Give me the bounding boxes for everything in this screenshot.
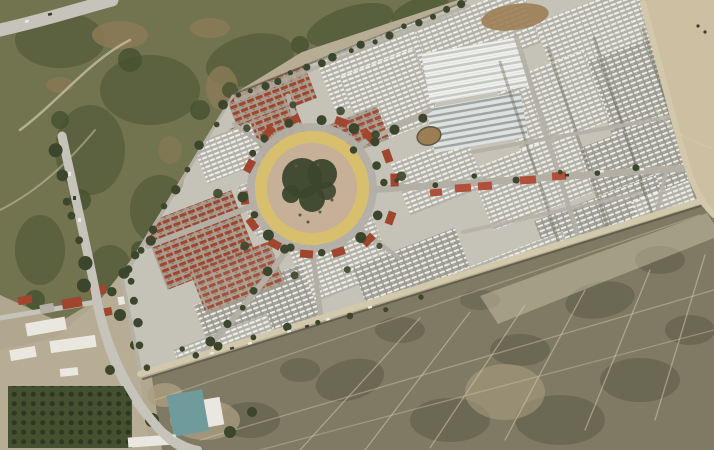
cypress-ring-outer [291, 271, 299, 279]
tree-row-avenue [223, 320, 231, 328]
orchard-trees [8, 386, 132, 448]
car [600, 170, 604, 173]
tree-row-north-wall [288, 70, 293, 75]
plaza-dot [299, 214, 302, 217]
tree [247, 407, 257, 417]
car [73, 196, 76, 200]
tree-row-west [171, 185, 180, 194]
tree-row-avenue [250, 287, 258, 295]
tree-row-avenue [432, 182, 438, 188]
cypress-ring [355, 232, 366, 243]
tree-row-avenue [513, 177, 520, 184]
car [703, 30, 706, 33]
cypress-ring [318, 249, 325, 256]
tree-row-avenue [394, 178, 399, 183]
tree-row-roadside [77, 279, 91, 293]
tree-row-north-wall [373, 39, 378, 44]
tree-row-north-wall [248, 88, 253, 93]
tree-row-avenue [263, 267, 273, 277]
tree-row-avenue [370, 137, 379, 146]
bare-patch [190, 18, 230, 38]
tree-row-west [185, 167, 191, 173]
tree-row-avenue [240, 305, 246, 311]
tree-row-west [161, 203, 167, 209]
tree [224, 426, 236, 438]
tree-row-south [418, 294, 423, 299]
cypress-ring [317, 115, 327, 125]
plaza-trees [318, 182, 336, 200]
tree-row-avenue [280, 244, 289, 253]
tree-row-west [144, 364, 151, 371]
tree-row-roadside [75, 236, 83, 244]
cypress-ring [349, 123, 360, 134]
tree-row-avenue [389, 125, 399, 135]
tree-row-south [383, 307, 388, 312]
tree-row-avenue [471, 173, 477, 179]
tree-row-south [214, 342, 223, 351]
plaza-dot [307, 221, 310, 224]
tree [190, 100, 210, 120]
tree-row-north-wall [443, 6, 450, 13]
cypress-ring [260, 135, 268, 143]
red-roof-structure [478, 182, 493, 191]
tree-row-north-wall [401, 23, 407, 29]
plaza-dot [319, 211, 322, 214]
car [640, 168, 644, 171]
cypress-ring [372, 161, 381, 170]
tree [118, 48, 142, 72]
tree-row-hill-edge [131, 251, 139, 259]
scrub-patch [490, 334, 550, 366]
cypress-ring-outer [213, 189, 223, 199]
tree-row-west [133, 318, 142, 327]
tree-row-roadside [49, 143, 63, 157]
tree-row-north-wall [318, 59, 326, 67]
tree-row-roadside [63, 198, 71, 206]
tree [114, 309, 126, 321]
tree-row-north-wall [349, 48, 354, 53]
tree-row-north-wall [385, 31, 393, 39]
car [696, 24, 699, 27]
tree-row-hill-edge [119, 268, 130, 279]
tree-row-north-wall [357, 41, 365, 49]
cypress-ring-outer [336, 107, 345, 116]
red-mausoleum [300, 249, 314, 258]
tree-row-avenue [350, 146, 357, 153]
cypress-ring-outer [376, 243, 382, 249]
tree-row-avenue [418, 114, 427, 123]
car [78, 218, 81, 222]
tree-row-north-wall [262, 82, 270, 90]
car [68, 172, 71, 176]
tree-row-avenue [558, 170, 563, 175]
tree-row-west [194, 141, 203, 150]
tree [51, 111, 69, 129]
satellite-image [0, 0, 714, 450]
tree-row-west [218, 100, 228, 110]
tree-row-north-wall [274, 78, 281, 85]
plaza-dot [295, 165, 298, 168]
tree-row-west [138, 247, 145, 254]
cypress-ring [284, 119, 293, 128]
tree-row-north-wall [457, 0, 465, 8]
tree-row-west [149, 226, 157, 234]
tree-row-south [315, 320, 320, 325]
tree-row-north-wall [415, 19, 422, 26]
cypress-ring-outer [243, 124, 251, 132]
tree-row-avenue [632, 164, 639, 171]
tree-row-north-wall [328, 53, 337, 62]
cypress-ring [263, 230, 274, 241]
tree-cluster [100, 55, 200, 125]
bare-patch [158, 136, 182, 164]
red-roof-structure [455, 183, 472, 192]
tree-row-south [251, 335, 257, 341]
tree-row-west [130, 297, 138, 305]
tree-row-avenue [193, 352, 200, 359]
cypress-ring [373, 211, 383, 221]
red-roof-structure [520, 175, 537, 184]
car [565, 174, 569, 177]
tree-row-north-wall [303, 64, 310, 71]
tree-row-west [136, 342, 144, 350]
screenshot-root [0, 0, 714, 450]
plaza-dot [317, 164, 320, 167]
plaza-trees [282, 185, 300, 203]
tree-row-north-wall [430, 14, 436, 20]
tree-row-roadside [68, 212, 76, 220]
tree-row-hill-edge [107, 287, 116, 296]
tree-row-west [214, 122, 220, 128]
cypress-ring-outer [240, 242, 249, 251]
tree-row-south [347, 313, 354, 320]
red-roof-structure [430, 189, 442, 197]
tree-row-avenue [595, 170, 601, 176]
cypress-ring [238, 192, 249, 203]
plaza-dot [331, 199, 334, 202]
tree-row-roadside [57, 170, 69, 182]
tree-row-hill-edge [146, 236, 156, 246]
tree-cluster [15, 215, 65, 285]
cypress-ring [380, 179, 387, 186]
tree-row-roadside [78, 256, 92, 270]
cypress-ring-outer [344, 266, 351, 273]
scrub-patch [280, 358, 320, 382]
building-teal-roof [167, 389, 210, 437]
tree-row-west [128, 278, 135, 285]
cypress-ring [249, 150, 256, 157]
tree-row-south [180, 346, 185, 351]
cypress-ring [251, 211, 258, 218]
tree-row-north-wall [236, 92, 241, 97]
cypress-ring-outer [289, 101, 296, 108]
